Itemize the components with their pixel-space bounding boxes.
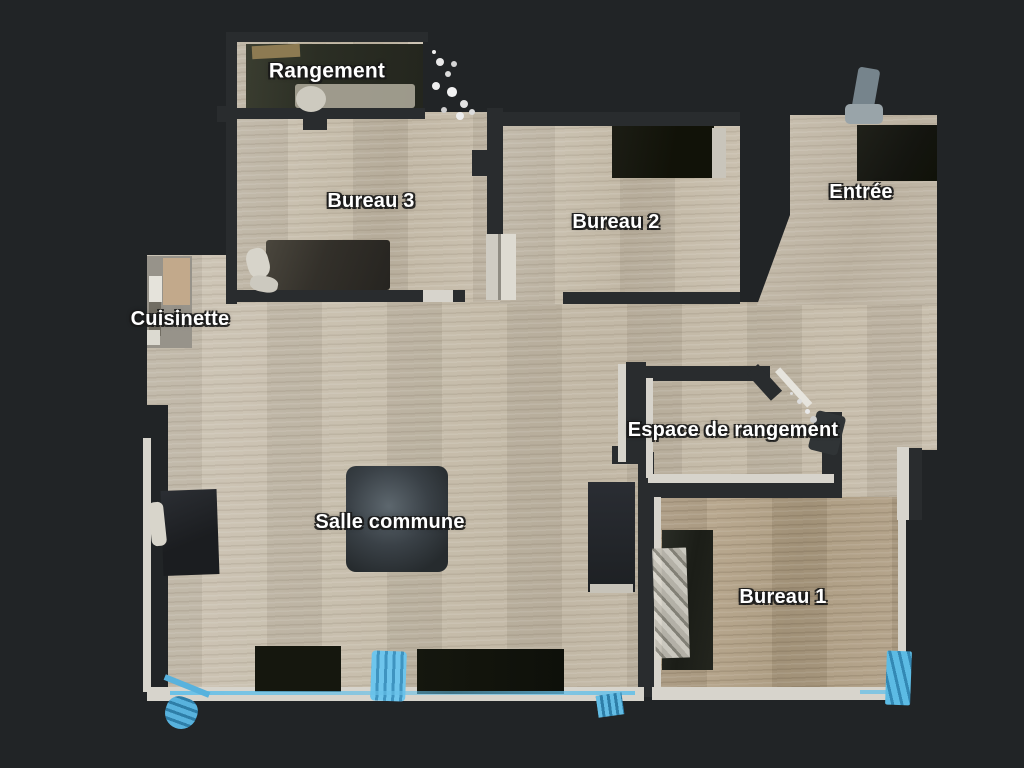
wall-fragment-right-dark xyxy=(908,448,922,520)
cuisinette-fixture xyxy=(147,330,160,345)
cuisinette-sink xyxy=(149,276,162,302)
wall-stub-bureau3 xyxy=(472,150,489,176)
room-label-cuisinette: Cuisinette xyxy=(131,309,230,329)
entree-doormat xyxy=(857,125,937,181)
wall-left-perimeter xyxy=(226,32,237,304)
wall-bureau3-bureau2 xyxy=(487,108,503,238)
wall-espace-bottom xyxy=(640,482,842,498)
salle-desk-bottom-left xyxy=(255,646,341,692)
bureau1-radiator xyxy=(885,651,912,706)
wall-lining-espace-left-outer xyxy=(618,364,626,462)
salle-desk-right xyxy=(588,482,635,592)
radiator-right xyxy=(596,692,625,717)
radiator-pipe-bottom xyxy=(170,691,635,695)
entree-chair-seat xyxy=(845,104,883,124)
wall-lining-espace-bottom-inner xyxy=(648,474,834,483)
cuisinette-cabinet xyxy=(163,258,190,305)
wall-bureau2-top xyxy=(495,112,740,126)
bureau3-desk xyxy=(266,240,390,290)
salle-desk-left xyxy=(161,489,220,576)
room-label-rangement: Rangement xyxy=(269,61,385,82)
rangement-stored-item xyxy=(252,44,301,59)
rangement-round-object xyxy=(296,86,326,112)
room-label-entree: Entrée xyxy=(829,182,892,202)
room-label-salle-commune: Salle commune xyxy=(315,512,464,532)
room-label-bureau-2: Bureau 2 xyxy=(572,212,659,232)
wall-stub-doorway xyxy=(303,114,327,130)
wall-fragment-right-light xyxy=(897,447,909,520)
wall-salle-left xyxy=(143,438,151,692)
salle-desk-bottom-right xyxy=(417,649,564,694)
wall-rangement-bureau3 xyxy=(233,108,425,119)
bureau2-desk xyxy=(612,126,714,178)
room-label-espace-de-rangement: Espace de rangement xyxy=(628,420,839,440)
scan-noise-speckles-door xyxy=(790,392,793,395)
floor-plan-canvas: Rangement Bureau 3 Bureau 2 Entrée Cuisi… xyxy=(0,0,1024,768)
bureau2-desk-edge xyxy=(712,128,726,178)
salle-desk-right-edge xyxy=(590,584,633,593)
wall-bureau3-bottom-stub xyxy=(453,290,465,302)
door-bureau3-open xyxy=(486,234,516,300)
wall-rangement-top xyxy=(228,32,428,42)
room-label-bureau-3: Bureau 3 xyxy=(327,191,414,211)
room-label-bureau-1: Bureau 1 xyxy=(739,587,826,607)
wall-bureau1-left xyxy=(638,452,654,697)
scan-noise-speckles xyxy=(432,50,436,54)
wall-bureau2-bottom xyxy=(563,292,740,304)
door-threshold-bureau3 xyxy=(423,290,453,302)
bureau1-shelf-unit xyxy=(652,547,690,658)
wall-left-notch xyxy=(217,106,229,122)
